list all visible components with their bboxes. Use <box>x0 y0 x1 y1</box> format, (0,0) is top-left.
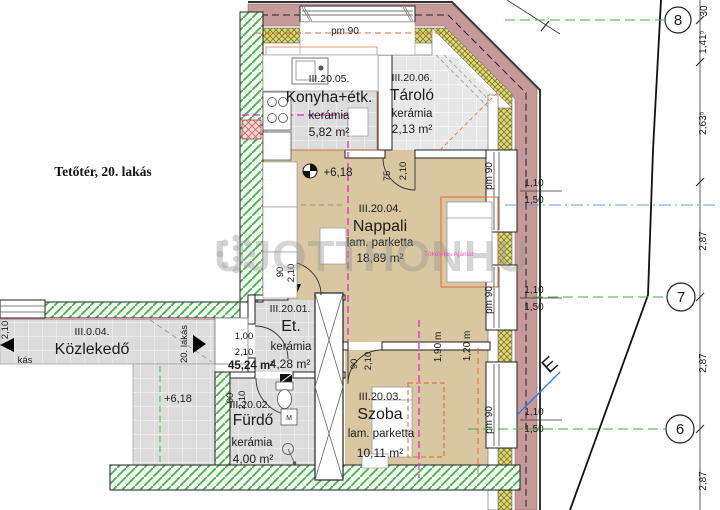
dining-table <box>320 228 346 264</box>
bedroom-window <box>486 362 517 448</box>
svg-text:30: 30 <box>699 5 710 17</box>
total-area: 45,24 m² <box>228 360 274 372</box>
svg-text:1,00: 1,00 <box>235 331 254 342</box>
room-area: 2,13 m² <box>392 122 433 136</box>
svg-text:2,87: 2,87 <box>698 471 709 491</box>
elevation-corridor: +6,18 <box>164 393 192 405</box>
svg-text:2,10: 2,10 <box>398 162 409 181</box>
room-name: Tároló <box>390 87 434 104</box>
svg-text:1,50: 1,50 <box>524 195 544 206</box>
floor-plan-page: M +6,18 +6,18 III.20.05. Konyha+étk. ker… <box>0 0 720 510</box>
room-finish: lam. parketta <box>347 237 414 249</box>
room-name: Nappali <box>353 218 407 235</box>
svg-text:90: 90 <box>349 359 360 370</box>
svg-text:1,10: 1,10 <box>524 178 544 189</box>
room-finish: kerámia <box>392 108 434 120</box>
washing-machine: M <box>281 409 297 425</box>
room-id: III.20.03. <box>359 391 402 403</box>
room-finish: kerámia <box>309 110 351 122</box>
room-name: Közlekedő <box>55 341 130 358</box>
room-area: 18,89 m² <box>356 251 403 265</box>
dimension-chain: 30 1,41⁵ 2,63⁵ 2,87 2,87 2,87 <box>696 0 710 510</box>
sill-height-label: pm 90 <box>484 406 495 434</box>
entry-label: 20. lakás <box>179 325 190 363</box>
left-neighbour-window <box>0 300 45 318</box>
svg-text:90: 90 <box>225 393 236 404</box>
grid-bubble-7: 7 <box>677 289 685 306</box>
floor-plan-drawing: M +6,18 +6,18 III.20.05. Konyha+étk. ker… <box>0 0 720 510</box>
grid-bubble-6: 6 <box>676 421 684 438</box>
corridor-north-wall <box>45 302 240 318</box>
sill-height-label: pm 90 <box>331 26 359 37</box>
svg-text:90: 90 <box>275 267 286 278</box>
svg-text:2,10: 2,10 <box>0 321 11 340</box>
svg-text:M: M <box>286 415 292 422</box>
room-area: 4,00 m² <box>233 452 274 466</box>
headroom-190-label: 1,90 m <box>433 332 444 363</box>
svg-text:2,87: 2,87 <box>698 353 709 373</box>
svg-text:+6,18: +6,18 <box>323 167 352 179</box>
sill-height-label: pm 90 <box>484 286 495 314</box>
svg-text:2,10: 2,10 <box>363 352 374 371</box>
grid-bubble-8: 8 <box>674 12 682 29</box>
fridge <box>263 132 291 160</box>
elevation-marker-living: +6,18 <box>303 164 353 179</box>
svg-text:1,10: 1,10 <box>524 285 544 296</box>
svg-text:2,10: 2,10 <box>235 347 254 358</box>
svg-text:75: 75 <box>382 171 393 182</box>
sill-height-label: pm 90 <box>484 162 495 190</box>
toilet <box>276 382 293 409</box>
room-id: III.20.01. <box>270 303 311 315</box>
room-area: 4,28 m² <box>270 357 311 371</box>
svg-text:1,50: 1,50 <box>524 302 544 313</box>
svg-text:2,87: 2,87 <box>698 231 709 251</box>
pillar <box>242 120 261 139</box>
room-id: III.0.04. <box>74 326 109 338</box>
room-id: III.20.05. <box>309 73 350 85</box>
corridor-landing-floor <box>133 364 215 465</box>
room-finish: lam. parketta <box>348 428 415 440</box>
shaft <box>315 293 343 480</box>
room-name: Szoba <box>357 406 402 423</box>
room-name: Konyha+étk. <box>286 89 373 106</box>
corner-dim-line <box>507 0 560 34</box>
neighbour-label: kás <box>18 355 33 366</box>
room-area: 10,11 m² <box>357 446 403 460</box>
living-room-bed <box>441 197 498 287</box>
room-id: III.20.04. <box>359 203 402 215</box>
grid-bubbles: 8 7 6 <box>665 7 695 443</box>
site-boundary-line <box>570 0 661 510</box>
kitchen-cabinet <box>348 108 368 136</box>
room-finish: kerámia <box>271 341 313 353</box>
svg-text:1,10: 1,10 <box>524 407 544 418</box>
west-wall <box>240 12 263 302</box>
headroom-120-label: 1,20 m <box>462 331 473 362</box>
svg-text:2,10: 2,10 <box>286 264 297 283</box>
room-area: 5,82 m² <box>309 125 350 139</box>
plan-title: Tetőtér, 20. lakás <box>28 164 178 180</box>
svg-text:2,10: 2,10 <box>237 391 248 410</box>
svg-text:2,63⁵: 2,63⁵ <box>698 111 709 135</box>
room-name: Fürdő <box>233 412 274 429</box>
svg-text:1,41⁵: 1,41⁵ <box>698 30 709 54</box>
room-id: III.20.06. <box>392 72 433 84</box>
room-finish: kerámia <box>232 437 274 449</box>
room-name: Et. <box>281 318 301 335</box>
